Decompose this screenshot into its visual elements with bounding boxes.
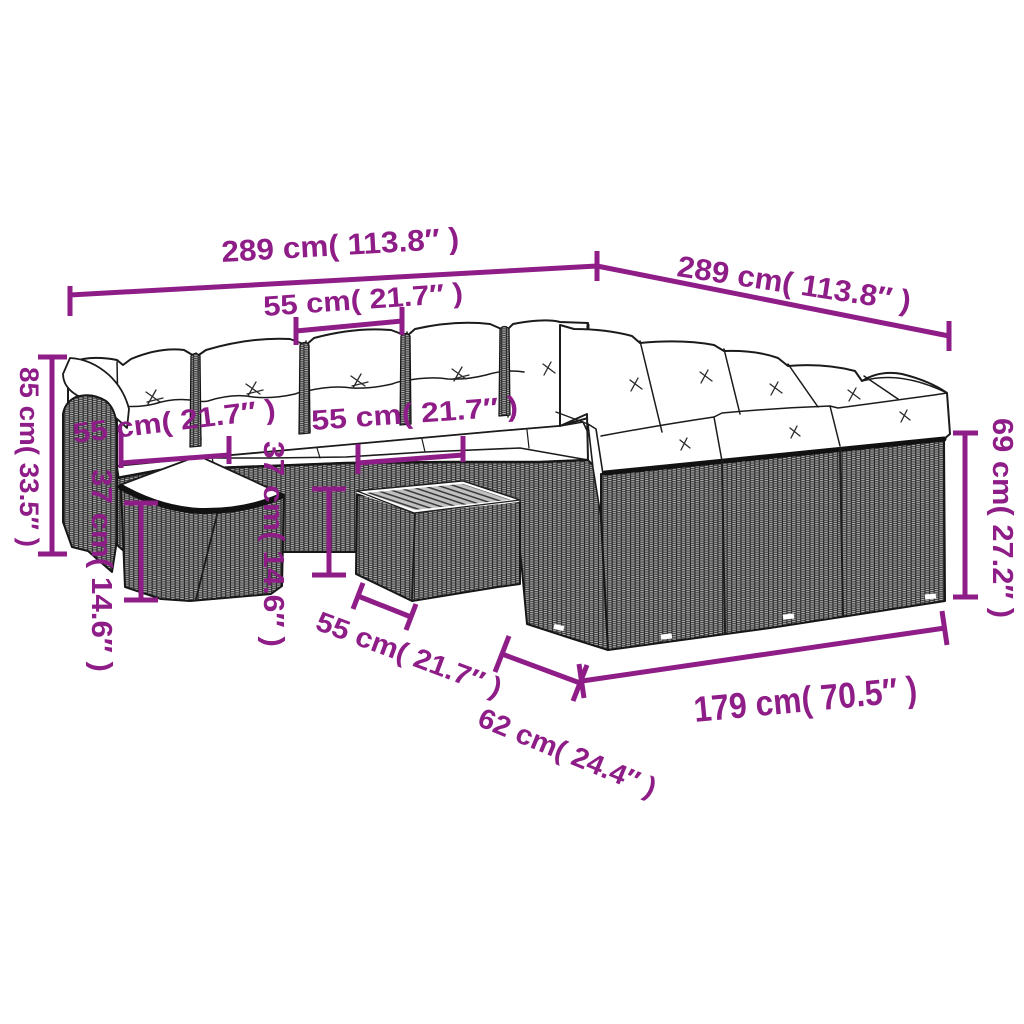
svg-text:37 cm( 14.6″ ): 37 cm( 14.6″ )	[85, 469, 117, 672]
svg-text:85 cm( 33.5″ ): 85 cm( 33.5″ )	[14, 367, 44, 547]
svg-text:69 cm( 27.2″ ): 69 cm( 27.2″ )	[986, 418, 1018, 618]
svg-text:37 cm( 14.6″ ): 37 cm( 14.6″ )	[257, 441, 289, 647]
